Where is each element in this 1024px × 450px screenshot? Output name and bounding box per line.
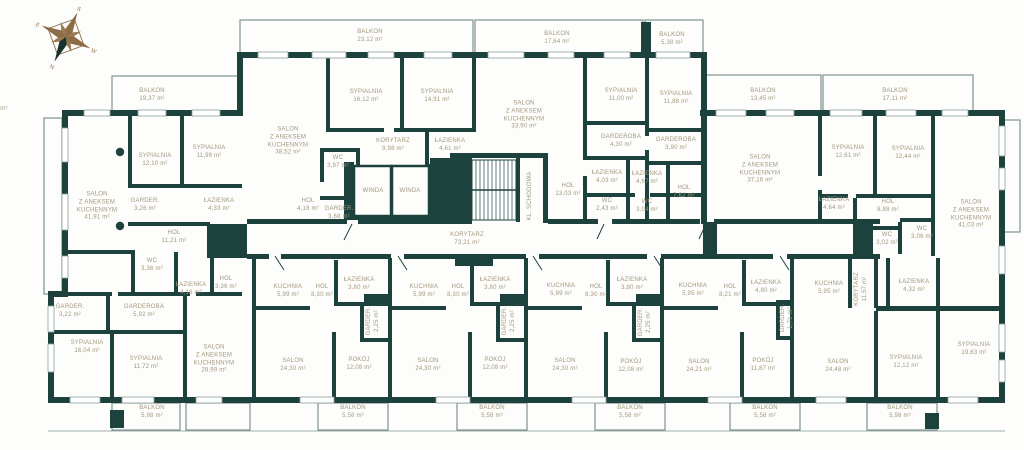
compass-s-label: S	[76, 6, 82, 13]
elevator-boxes	[354, 166, 429, 216]
walls-layer: S N W E	[0, 0, 1024, 450]
column	[116, 148, 124, 156]
floor-plan: S N W E BALKON 19,37 m²BALKON 23,12 m²BA…	[0, 0, 1024, 450]
column	[116, 222, 124, 230]
compass-n-label: N	[48, 64, 55, 72]
compass-w-label: W	[89, 48, 97, 56]
compass-e-label: E	[34, 22, 40, 29]
wall-segments	[48, 22, 1005, 429]
staircase	[472, 160, 516, 220]
compass-icon: S N W E	[20, 0, 110, 85]
